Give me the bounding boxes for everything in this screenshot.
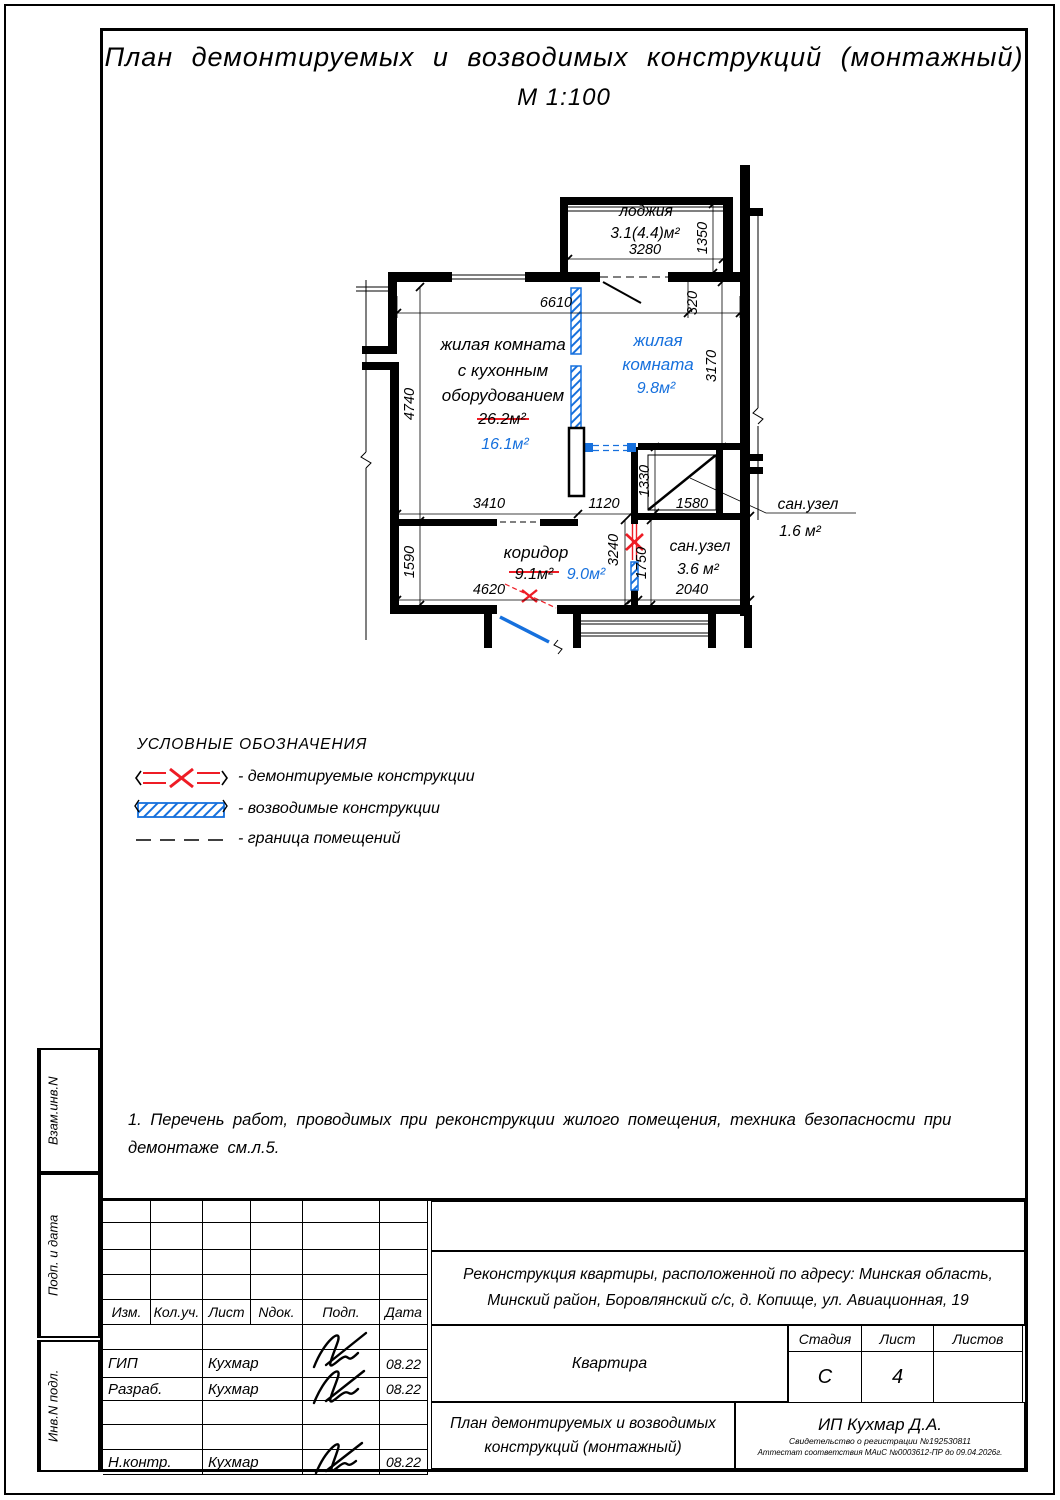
- project-line-2: Минский район, Боровлянский с/с, д. Копи…: [487, 1288, 968, 1314]
- area-old-corridor: 9.1м²: [515, 566, 554, 583]
- room-label-living-kitchen-3: оборудованием: [442, 386, 565, 405]
- object-name-box: Квартира: [431, 1325, 788, 1402]
- room-label-living-2: комната: [622, 355, 693, 374]
- dim-3280: 3280: [629, 242, 661, 258]
- area-new-corridor: 9.0м²: [567, 566, 606, 583]
- title-block: Изм. Кол.уч. Лист Nдок. Подп. Дата ГИП К…: [100, 1198, 1028, 1472]
- room-label-living-kitchen-2: с кухонным: [458, 361, 549, 380]
- dim-1120: 1120: [588, 496, 619, 512]
- stage-label: Стадия: [789, 1326, 862, 1352]
- project-line-1: Реконструкция квартиры, расположенной по…: [463, 1262, 993, 1288]
- drawing-name-line-1: План демонтируемых и возводимых: [450, 1412, 716, 1436]
- side-stamp-podp-label: Подп. и дата: [39, 1175, 65, 1336]
- floor-plan: жилая комната с кухонным оборудованием 2…: [350, 150, 870, 670]
- legend-header: УСЛОВНЫЕ ОБОЗНАЧЕНИЯ: [137, 736, 367, 754]
- company-box: ИП Кухмар Д.А. Свидетельство о регистрац…: [735, 1402, 1025, 1469]
- project-name-box: Реконструкция квартиры, расположенной по…: [431, 1251, 1025, 1325]
- dim-1350: 1350: [695, 222, 711, 254]
- dim-3240: 3240: [606, 534, 622, 566]
- dim-6610: 6610: [540, 295, 572, 311]
- side-stamp-inv-field: [65, 1342, 98, 1470]
- drawing-name-box: План демонтируемых и возводимых конструк…: [431, 1402, 735, 1469]
- col-koluch: Кол.уч.: [151, 1300, 203, 1325]
- area-bath-small: 1.6 м²: [779, 523, 821, 540]
- area-bath-big: 3.6 м²: [677, 561, 719, 578]
- signature-icon: [314, 1333, 366, 1367]
- approval-empty-box: [431, 1201, 1025, 1251]
- signature-icon: [314, 1371, 364, 1403]
- side-stamp-inv-label: Инв.N подл.: [39, 1342, 65, 1470]
- legend-item-demolished: - демонтируемые конструкции: [238, 768, 475, 786]
- sheet-scale: М 1:100: [100, 84, 1028, 112]
- company-cert-1: Свидетельство о регистрации №192530811: [789, 1436, 971, 1447]
- signer-name: Кухмар: [203, 1450, 303, 1475]
- dim-320: 320: [685, 291, 701, 315]
- area-living: 9.8м²: [637, 380, 676, 397]
- company-name: ИП Кухмар Д.А.: [818, 1414, 942, 1436]
- col-izm: Изм.: [103, 1300, 151, 1325]
- drawing-sheet: План демонтируемых и возводимых конструк…: [0, 0, 1060, 1500]
- side-stamp-podp-field: [65, 1175, 98, 1336]
- sheet-label: Лист: [862, 1326, 934, 1352]
- signer-role: ГИП: [103, 1350, 203, 1378]
- sheet-title: План демонтируемых и возводимых конструк…: [100, 42, 1028, 73]
- area-new-living-kitchen: 16.1м²: [481, 436, 529, 453]
- stage-value: С: [789, 1352, 862, 1403]
- note-line-1: 1. Перечень работ, проводимых при реконс…: [128, 1106, 1008, 1134]
- room-label-corridor: коридор: [504, 543, 569, 562]
- dim-4620: 4620: [473, 582, 505, 598]
- signer-name: Кухмар: [203, 1350, 303, 1378]
- note-line-2: демонтаже см.л.5.: [128, 1134, 1008, 1162]
- room-label-loggia: лоджия: [618, 203, 673, 220]
- dim-2040: 2040: [675, 582, 708, 598]
- dim-1750: 1750: [634, 547, 650, 579]
- legend-item-boundary: - граница помещений: [238, 830, 401, 848]
- room-label-living-kitchen-1: жилая комната: [439, 335, 565, 354]
- side-stamp-vzam: Взам.инв.N: [37, 1048, 100, 1173]
- room-label-bath-big: сан.узел: [670, 538, 731, 555]
- room-label-bath-small: сан.узел: [778, 496, 839, 513]
- erected-symbol-icon: [135, 800, 227, 817]
- legend: УСЛОВНЫЕ ОБОЗНАЧЕНИЯ - демонтируемые кон…: [134, 736, 694, 856]
- object-name: Квартира: [572, 1355, 647, 1373]
- dim-1590: 1590: [402, 546, 418, 578]
- col-ndok: Nдок.: [251, 1300, 303, 1325]
- col-list: Лист: [203, 1300, 251, 1325]
- notes: 1. Перечень работ, проводимых при реконс…: [128, 1106, 1008, 1162]
- sheets-value: [934, 1352, 1023, 1403]
- dim-3170: 3170: [704, 350, 720, 382]
- sheets-label: Листов: [934, 1326, 1023, 1352]
- side-stamp-podp: Подп. и дата: [37, 1173, 100, 1338]
- room-label-living-1: жилая: [632, 331, 682, 350]
- sheet-value: 4: [862, 1352, 934, 1403]
- area-old-living-kitchen: 26.2м²: [477, 411, 526, 428]
- dim-1580: 1580: [676, 496, 708, 512]
- signatures: [308, 1319, 393, 1479]
- dim-3410: 3410: [473, 496, 505, 512]
- side-stamp-vzam-label: Взам.инв.N: [39, 1050, 65, 1171]
- dim-4740: 4740: [402, 388, 418, 420]
- signer-name: Кухмар: [203, 1378, 303, 1401]
- door-jamb: [569, 428, 584, 496]
- revision-grid-empty: [103, 1201, 431, 1300]
- company-cert-2: Аттестат соответствия МАиС №0003612-ПР д…: [758, 1447, 1003, 1458]
- signer-role: Разраб.: [103, 1378, 203, 1401]
- side-stamp-vzam-field: [65, 1050, 98, 1171]
- demolished-symbol-icon: [136, 769, 227, 787]
- area-loggia: 3.1(4.4)м²: [610, 225, 680, 242]
- legend-item-erected: - возводимые конструкции: [238, 800, 440, 818]
- stage-grid: Стадия Лист Листов С 4: [788, 1325, 1025, 1402]
- signature-icon: [316, 1443, 362, 1473]
- drawing-name-line-2: конструкций (монтажный): [484, 1436, 681, 1460]
- door-swing: [603, 282, 641, 303]
- signer-role: Н.контр.: [103, 1450, 203, 1475]
- side-stamp-inv: Инв.N подл.: [37, 1340, 100, 1472]
- dim-1330: 1330: [637, 465, 653, 497]
- legend-symbols: [134, 766, 234, 856]
